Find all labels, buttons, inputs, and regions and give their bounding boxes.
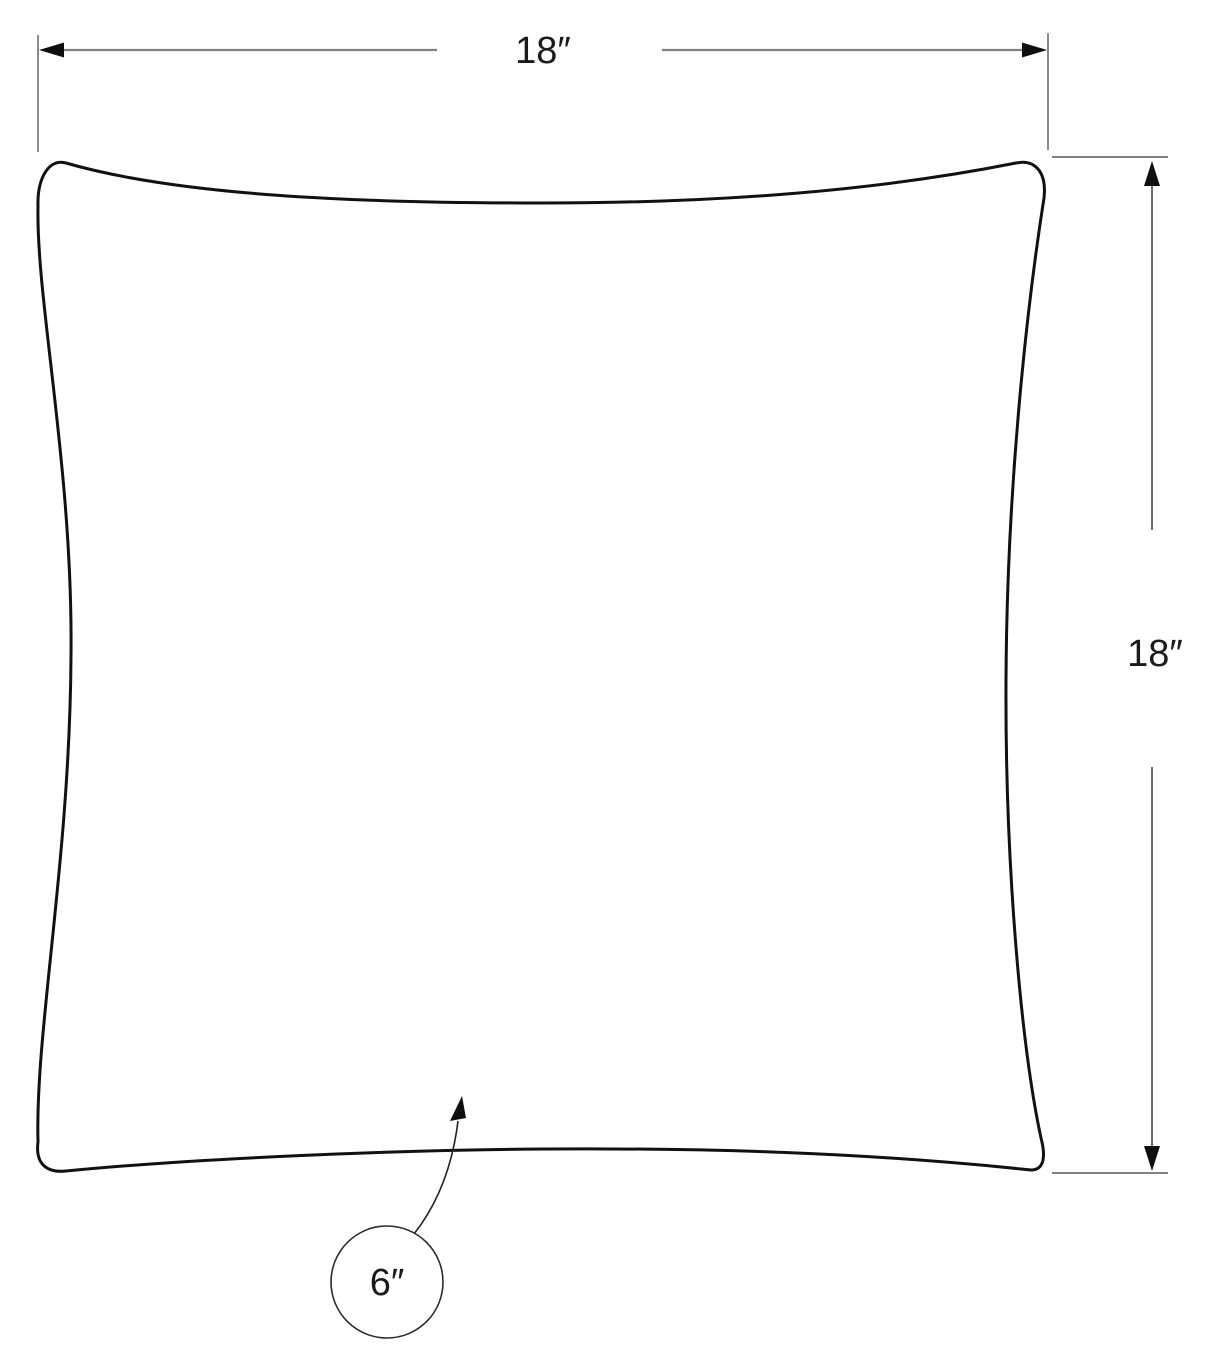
pillow-outline	[38, 162, 1045, 1171]
right-height-dimension: 18″	[1052, 157, 1183, 1173]
width-arrow-left-icon	[39, 43, 64, 58]
top-width-dimension: 18″	[38, 30, 1048, 152]
height-arrow-down-icon	[1144, 1146, 1160, 1171]
callout-label: 6″	[370, 1262, 405, 1304]
pillow-dimension-diagram: 18″ 18″ 6″	[0, 0, 1209, 1372]
pillow-spec-diagram-canvas: 18″ 18″ 6″	[0, 0, 1209, 1372]
height-label: 18″	[1127, 633, 1183, 675]
pillow	[38, 162, 1045, 1171]
height-arrow-up-icon	[1144, 161, 1160, 186]
width-arrow-right-icon	[1022, 43, 1047, 58]
width-label: 18″	[515, 30, 571, 72]
